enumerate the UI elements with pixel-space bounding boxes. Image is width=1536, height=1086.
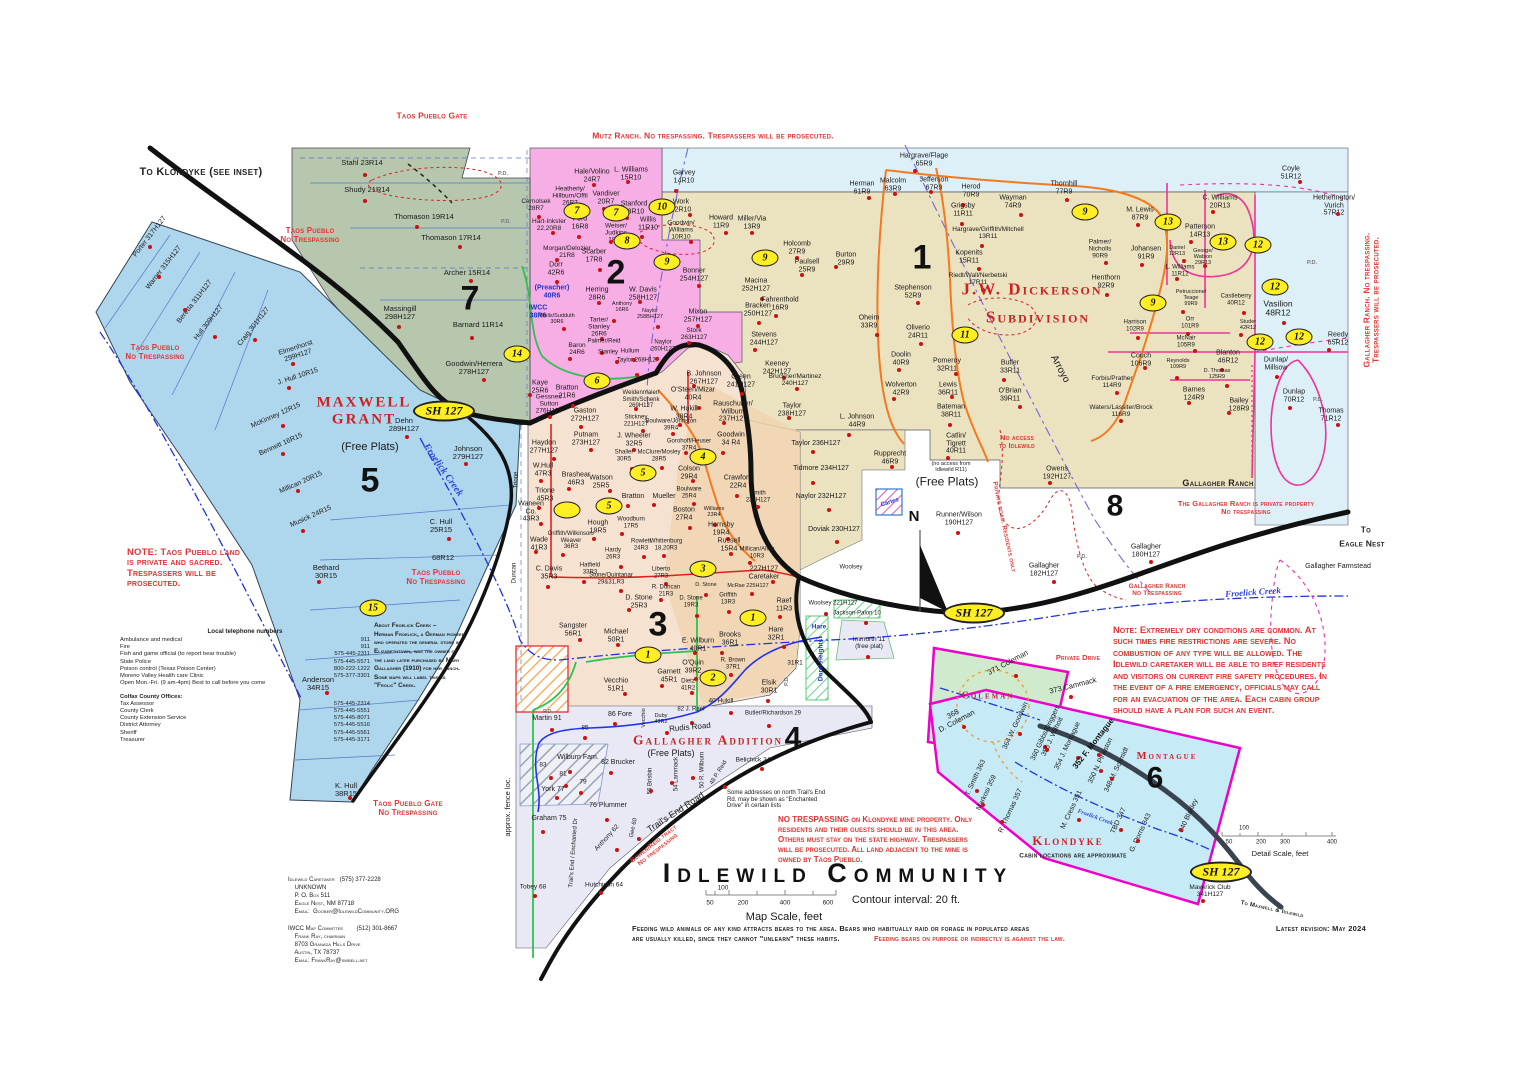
property-dot (1110, 777, 1114, 781)
property-dot (913, 169, 917, 173)
map-label: Patterson 14R13 (1185, 223, 1215, 238)
map-label: Taylor 236H127 (791, 440, 840, 448)
property-dot (583, 736, 587, 740)
map-label: (Preacher) 40R6 (535, 284, 570, 299)
property-dot (1014, 674, 1018, 678)
map-label: Harrison 102R9 (1124, 319, 1147, 332)
map-label: 100 (718, 884, 729, 891)
property-dot (608, 489, 612, 493)
map-label: Gessner/ Sutton 276H127 (536, 393, 562, 414)
property-dot (720, 651, 724, 655)
property-dot (1181, 310, 1185, 314)
property-dot (1282, 321, 1286, 325)
map-label: Shudy 21R14 (344, 186, 389, 194)
property-dot (638, 300, 642, 304)
property-dot (774, 314, 778, 318)
map-label: Howard 11R9 (709, 214, 733, 229)
property-dot (464, 462, 468, 466)
map-label: Russell 15R4 (718, 537, 741, 552)
map-label: Naylor 258BH127 (637, 308, 663, 320)
property-dot (534, 550, 538, 554)
property-dot (635, 373, 639, 377)
map-label: Holcomb 27R9 (783, 240, 811, 255)
property-dot (613, 722, 617, 726)
property-dot (760, 767, 764, 771)
property-dot (724, 231, 728, 235)
route-badge: 5 (630, 465, 657, 482)
map-label: Rauschuber/ Wilburn 237H127 (713, 400, 753, 423)
property-dot (605, 818, 609, 822)
property-dot (1149, 560, 1153, 564)
map-label: Maverick Club 341H127 (1189, 884, 1230, 898)
map-label: Johansen 91R9 (1131, 245, 1161, 260)
map-label: Boulware/Johnston 39R4 (645, 418, 696, 431)
property-dot (919, 342, 923, 346)
map-label: Subdivision (986, 309, 1090, 328)
map-label: Green 241H127 (727, 373, 755, 388)
map-label: 3 (649, 606, 668, 643)
property-dot (659, 598, 663, 602)
map-label: 50 (1226, 840, 1233, 847)
map-label: Scarber 17R8 (582, 248, 607, 263)
property-dot (528, 393, 532, 397)
map-label: Gaston 272H127 (571, 407, 599, 422)
map-label: Private Drive (1056, 654, 1100, 662)
property-dot (1136, 223, 1140, 227)
map-label: 50 R. Wilburn (700, 752, 707, 788)
property-dot (834, 265, 838, 269)
route-badge: 9 (1072, 204, 1099, 221)
map-label: D. Stone (695, 582, 716, 588)
property-dot (1242, 311, 1246, 315)
map-label: P.D. (784, 676, 790, 686)
map-label: Hare 32R1 (768, 626, 785, 641)
map-label: 68R12 (432, 554, 454, 562)
property-dot (1104, 261, 1108, 265)
property-dot (655, 357, 659, 361)
map-label: (Free Plats) (916, 475, 979, 488)
map-label: Waters/Lassiter/Brock 116R9 (1089, 404, 1152, 418)
map-label: W.Hull 47R3 (533, 462, 553, 477)
map-label: E. Wilburn 40R1 (682, 637, 714, 652)
map-label: Bethard 30R15 (313, 564, 339, 581)
directory-row: County Clerk575-445-5551 (120, 708, 370, 715)
map-label: Thornhill 77R9 (1051, 180, 1078, 195)
map-label: Woolsey (840, 565, 863, 572)
map-label: Hare (812, 623, 826, 630)
property-dot (1136, 839, 1140, 843)
map-label: 82 Brucker (601, 759, 635, 767)
map-label: 86 Fore (608, 711, 632, 719)
map-label: Herod 70R9 (961, 183, 980, 198)
property-dot (1119, 419, 1123, 423)
property-dot (562, 327, 566, 331)
property-dot (1002, 378, 1006, 382)
property-dot (875, 333, 879, 337)
property-dot (954, 372, 958, 376)
map-label: Lewis 36R11 (938, 381, 958, 396)
phone-directory: Local telephone numbers Ambulance and me… (120, 628, 370, 744)
property-dot (729, 552, 733, 556)
property-dot (577, 235, 581, 239)
property-dot (1099, 769, 1103, 773)
map-label: Gallagher Farmstead (1305, 563, 1371, 571)
property-dot (962, 725, 966, 729)
property-dot (1045, 748, 1049, 752)
property-dot (1298, 180, 1302, 184)
map-label: Couch 106R9 (1131, 352, 1152, 367)
property-dot (897, 368, 901, 372)
property-dot (1077, 818, 1081, 822)
property-dot (1019, 213, 1023, 217)
map-label: P.D. (501, 219, 511, 225)
map-label: Mueller (653, 493, 676, 501)
directory-row: Moreno Valley Health care Clinic575-377-… (120, 673, 370, 680)
map-label: Wells/Sudduth 30R6 (539, 313, 574, 325)
property-dot (950, 395, 954, 399)
property-dot (1239, 333, 1243, 337)
map-label: Hargrave/Griffith/Mitchell 13R11 (952, 226, 1023, 240)
property-dot (287, 386, 291, 390)
property-dot (1143, 366, 1147, 370)
county-offices-title: Colfax County Offices: (120, 694, 370, 700)
map-label: Runner/Wilson 190H127 (936, 511, 982, 526)
map-label: Cernolsek 28R7 (521, 198, 550, 212)
property-dot (568, 770, 572, 774)
map-label: 5 (361, 462, 380, 499)
map-label: Gallagher 182H127 (1029, 562, 1059, 577)
map-label: Pomeroy 32R11 (933, 357, 961, 372)
map-label: Griffith/Wilkinson/ Weaver 36R3 (548, 531, 595, 551)
map-label: L. Johnson 44R9 (840, 413, 874, 428)
map-label: (Free Plats) (647, 749, 694, 759)
map-label: Dorr 42R6 (548, 261, 565, 276)
directory-row: Sheriff575-445-5561 (120, 730, 370, 737)
property-dot (800, 273, 804, 277)
map-label: Vasilion 48R12 (1263, 300, 1292, 319)
property-dot (1187, 401, 1191, 405)
map-label: 40 Hukill (709, 697, 734, 704)
directory-row: Tax Assessor575-445-2314 (120, 701, 370, 708)
map-label: Thomason 17R14 (421, 234, 481, 242)
map-label: Miller/Via 13R9 (738, 215, 767, 230)
property-dot (948, 423, 952, 427)
property-dot (688, 213, 692, 217)
property-dot (634, 407, 638, 411)
property-dot (691, 776, 695, 780)
map-label: Taos Pueblo No Trespassing (280, 227, 339, 245)
map-label: To (1361, 527, 1371, 536)
property-dot (893, 192, 897, 196)
property-dot (687, 341, 691, 345)
property-dot (592, 183, 596, 187)
map-label: Michael 50R1 (604, 628, 628, 643)
property-dot (735, 494, 739, 498)
property-dot (552, 457, 556, 461)
map-label: Dorel Heights (817, 639, 824, 681)
property-dot (148, 245, 152, 249)
map-label: Wilburn Fam. (557, 754, 599, 762)
map-label: Naylor 232H127 (796, 493, 847, 501)
property-dot (598, 268, 602, 272)
map-label: Goodwin 34 R4 (717, 431, 745, 446)
property-dot (1288, 406, 1292, 410)
property-dot (348, 796, 352, 800)
map-label: Putnam 273H127 (572, 431, 600, 446)
map-label: D. Thomas 125R9 (1204, 368, 1231, 380)
map-label: Fahrenthold 16R9 (761, 296, 798, 311)
map-label: Mutz Ranch. No trespassing. Trespassers … (592, 131, 833, 140)
map-label: L. Williams 11R12 (1165, 264, 1194, 277)
map-label: Daniel 12R13 (1169, 245, 1185, 257)
property-dot (656, 325, 660, 329)
map-label: Millican/Allen 10R3 (739, 546, 774, 559)
map-label: Taos Pueblo Gate (397, 111, 468, 120)
property-dot (642, 555, 646, 559)
map-label: 82 J. Raef (677, 707, 704, 714)
map-label: Willis 11R10 (638, 216, 658, 231)
map-label: B. Johnson 267H127 (686, 370, 721, 385)
map-label: P.D. (543, 709, 553, 715)
map-label: approx. fence loc. (504, 777, 512, 836)
map-label: Johnson 279H127 (453, 445, 483, 462)
property-dot (458, 245, 462, 249)
map-label: Goodwin/ Williams 10R10 (667, 219, 694, 240)
route-badge: 7 (564, 203, 591, 220)
highway-badge: SH 127 (413, 401, 475, 422)
map-label: Gallagher Ranch No Trespassing (1129, 583, 1186, 597)
map-label: The Gallagher Ranch is private property … (1178, 500, 1314, 517)
map-label: Brooks 36R1 (719, 631, 741, 646)
property-dot (1119, 828, 1123, 832)
map-label: Crawford 22R4 (724, 474, 752, 489)
map-label: Rowlett 24R3 (631, 538, 651, 551)
property-dot (750, 231, 754, 235)
map-label: Woolsey 221H127 (809, 601, 858, 608)
map-label: Coyle 51R12 (1281, 165, 1302, 180)
property-dot (756, 505, 760, 509)
map-label: Belichick 34 (736, 756, 771, 763)
property-dot (1182, 259, 1186, 263)
property-dot (660, 466, 664, 470)
directory-row: District Attorney575-445-5516 (120, 722, 370, 729)
property-dot (981, 803, 985, 807)
property-dot (213, 335, 217, 339)
map-label: Goodwin/Herrera 278H127 (445, 360, 502, 377)
property-dot (1065, 198, 1069, 202)
property-dot (616, 643, 620, 647)
route-badge: 12 (1286, 329, 1313, 346)
map-label: Vecchio (641, 708, 647, 727)
map-label: Taos Pueblo No Trespassing (406, 569, 465, 587)
property-dot (771, 580, 775, 584)
map-label: Taylor 238H127 (778, 402, 806, 417)
property-dot (599, 891, 603, 895)
map-label: Stork 263H127 (681, 327, 707, 341)
route-badge: 9 (752, 250, 779, 267)
map-label: Boston 27R4 (673, 506, 695, 521)
map-label: Boulware 25R4 (676, 486, 701, 499)
map-label: Gallagher Ranch. No trespassing. Trespas… (1363, 218, 1382, 382)
map-label: Weidenmaier/ Smith/Schenk 269H127 (622, 390, 659, 410)
property-dot (317, 580, 321, 584)
map-label: Stanley (598, 350, 618, 357)
property-dot (750, 592, 754, 596)
property-dot (929, 190, 933, 194)
map-label: O'Quin 39R2 (682, 659, 704, 674)
map-label: Kopenits 15R11 (955, 249, 982, 264)
map-label: Coleman (962, 691, 1015, 702)
property-dot (183, 308, 187, 312)
map-label: Palmer/ Nicholls 90R9 (1089, 238, 1112, 259)
map-label: 79 (579, 778, 586, 785)
map-label: No access to Idlewild (999, 434, 1035, 451)
property-dot (397, 325, 401, 329)
map-label: 600 (823, 899, 834, 906)
property-dot (753, 348, 757, 352)
map-label: McNair 105R9 (1177, 335, 1196, 348)
map-label: Tarter/ Stanley 26R6 (588, 316, 610, 337)
map-label: NOTE: Taos Pueblo land is private and sa… (127, 548, 240, 590)
map-label: Grigsby 11R11 (951, 202, 975, 217)
map-label: Haydon 277H127 (530, 439, 558, 454)
property-dot (670, 781, 674, 785)
map-label: Sangster 56R1 (559, 622, 587, 637)
map-label: Bratton (622, 493, 645, 501)
map-label: 81 (559, 770, 566, 777)
property-dot (729, 673, 733, 677)
map-label: Mixon 257H127 (684, 308, 712, 323)
property-dot (623, 692, 627, 696)
map-label: Rupprecht 46R9 (874, 450, 906, 465)
property-dot (1327, 348, 1331, 352)
map-label: Bonner 254H127 (680, 267, 708, 282)
map-label: D. Stone 19R3 (679, 595, 702, 608)
property-dot (281, 452, 285, 456)
property-dot (778, 615, 782, 619)
directory-row: County Extension Service575-445-8071 (120, 715, 370, 722)
property-dot (539, 479, 543, 483)
property-dot (1175, 277, 1179, 281)
map-label: Naylor 260H127 (651, 339, 675, 352)
map-label: Williams 23R4 (704, 506, 724, 518)
property-dot (157, 275, 161, 279)
property-dot (1179, 828, 1183, 832)
route-badge: 13 (1210, 234, 1237, 251)
property-dot (660, 684, 664, 688)
property-dot (1136, 336, 1140, 340)
map-label: Dunlap 70R12 (1283, 388, 1305, 403)
map-label: Duncan (512, 563, 519, 584)
map-label: Map Scale, feet (746, 911, 822, 923)
property-dot (1018, 732, 1022, 736)
map-label: Stahl 23R14 (341, 159, 382, 167)
property-dot (721, 451, 725, 455)
map-label: 31R1 (787, 659, 803, 666)
map-label: Detail Scale, feet (1252, 850, 1309, 858)
directory-row: Ambulance and medical911 (120, 637, 370, 644)
property-dot (568, 357, 572, 361)
map-label: Griffith 13R3 (719, 592, 737, 605)
map-label: MAXWELL GRANT (317, 395, 412, 428)
map-label: Raef 11R3 (776, 597, 792, 612)
directory-row: Treasurer575-445-3171 (120, 737, 370, 744)
map-label: Hutchison 64 (585, 881, 623, 888)
map-label: Barnes 124R9 (1183, 386, 1205, 401)
map-label: Massingill 298H127 (384, 305, 417, 322)
property-dot (640, 235, 644, 239)
map-label: Whittenburg 18,20R3 (650, 538, 682, 551)
map-label: Elsik 30R1 (761, 679, 778, 694)
map-label: Hale/Volino 24R7 (574, 168, 609, 183)
map-label: Stevens 244H127 (750, 331, 778, 346)
property-dot (689, 240, 693, 244)
map-label: Forbis/Prather 114R9 (1091, 375, 1132, 389)
property-dot (1336, 423, 1340, 427)
property-dot (539, 522, 543, 526)
map-label: Garvey 14R10 (673, 169, 696, 184)
map-label: Shaller 30R5 (615, 449, 634, 462)
map-label: Vandiver 20R7 (592, 190, 619, 205)
map-label: Gallagher 180H127 (1131, 543, 1161, 558)
map-label: 2 (607, 254, 626, 291)
map-label: Stone/Quintanar 29&31,R3 (589, 572, 633, 585)
property-dot (977, 267, 981, 271)
property-dot (291, 362, 295, 366)
map-label: R. Brown 37R1 (721, 657, 746, 670)
map-label: Barnard 11R14 (453, 321, 503, 329)
property-dot (1189, 240, 1193, 244)
property-dot (727, 610, 731, 614)
map-label: To Klondyke (see inset) (140, 166, 263, 178)
map-label: Bruckner/Martinez 240H127 (769, 373, 822, 387)
map-label: Jackson-Palon 10 (833, 611, 881, 618)
route-badge: 7 (603, 205, 630, 222)
property-dot (597, 301, 601, 305)
route-badge: 13 (1155, 214, 1182, 231)
map-label: Wade 41R3 (530, 536, 548, 551)
map-label: Archer 15R14 (444, 269, 490, 277)
map-label: C. Hull 25R15 (430, 518, 453, 535)
property-dot (548, 415, 552, 419)
map-label: W. Davis 258H127 (629, 286, 657, 301)
property-dot (579, 791, 583, 795)
map-label: Baron 24R6 (568, 342, 585, 356)
map-label: Taos Pueblo No Trespassing (125, 344, 184, 362)
map-label: Herman 61R9 (850, 180, 875, 195)
map-label: 300 (1280, 840, 1290, 847)
route-badge: 10 (649, 199, 676, 216)
property-dot (1201, 899, 1205, 903)
property-dot (688, 526, 692, 530)
map-label: Latest revision: May 2024 (1276, 925, 1366, 933)
map-label: 76 Plummer (589, 802, 627, 810)
route-badge: 8 (614, 233, 641, 250)
map-label: 7 (461, 280, 480, 317)
map-label: McRae 225H127 (727, 583, 768, 589)
route-badge: 11 (952, 327, 979, 344)
map-label: Owens 192H127 (1043, 465, 1071, 480)
map-label: Blanton 46R12 (1216, 349, 1240, 364)
map-label: Oheim 33R9 (859, 314, 880, 329)
map-label: 83 (539, 761, 546, 768)
map-label: Woodburn 17R5 (617, 516, 645, 529)
map-label: Herring 28R6 (586, 286, 609, 301)
map-label: Catlin/ Tigrett 40R11 (946, 432, 966, 455)
directory-row: Fire911 (120, 644, 370, 651)
property-dot (1225, 384, 1229, 388)
property-dot (740, 392, 744, 396)
